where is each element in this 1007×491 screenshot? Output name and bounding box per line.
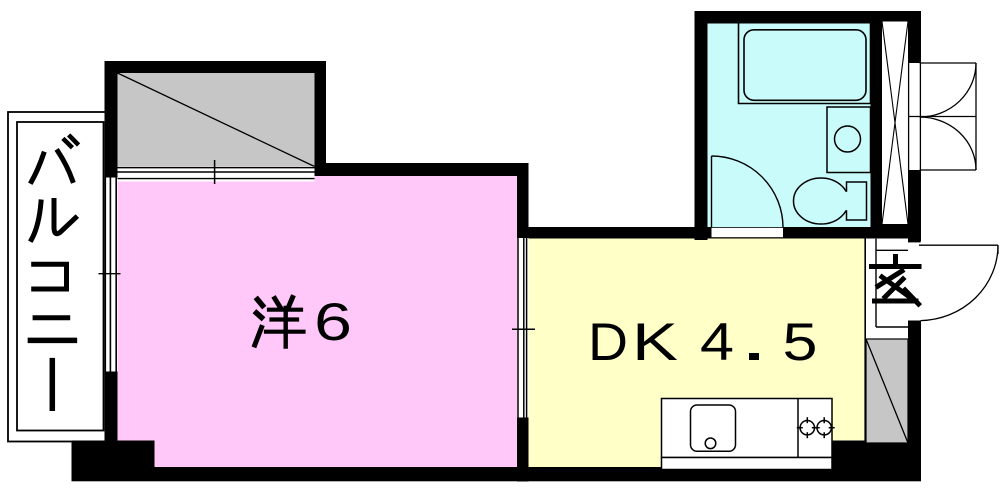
svg-text:DK45: DK45 [588, 313, 818, 372]
svg-text:6: 6 [314, 293, 352, 352]
